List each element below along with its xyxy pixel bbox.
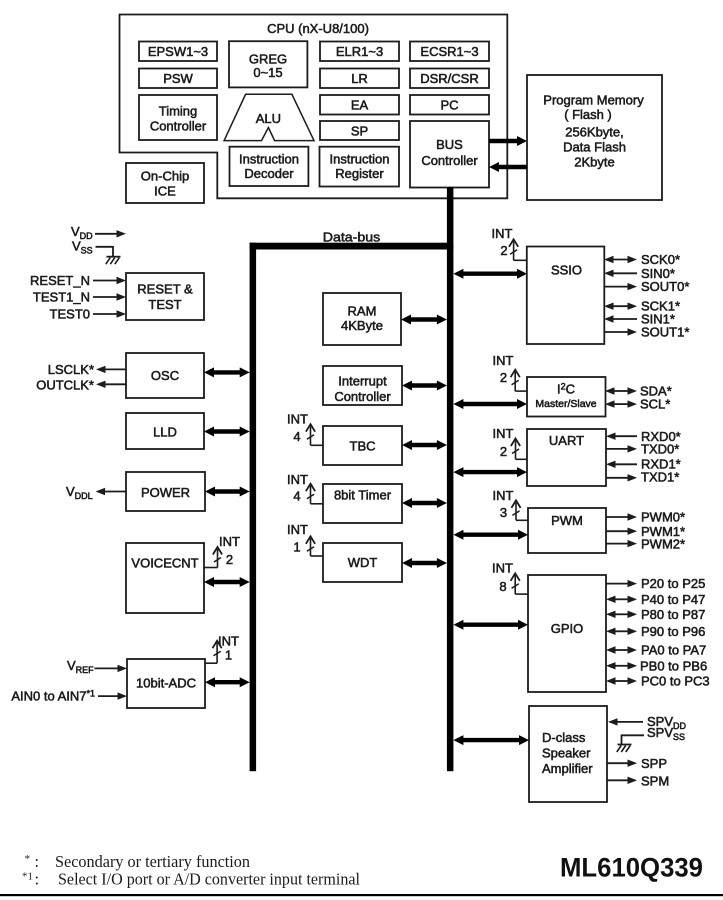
svg-text:Instruction: Instruction [330,151,390,166]
svg-text:4KByte: 4KByte [341,318,383,333]
svg-text:PSW: PSW [163,71,193,86]
svg-text:ML610Q339: ML610Q339 [560,853,703,883]
svg-text:0~15: 0~15 [253,65,282,80]
svg-text:On-Chip: On-Chip [141,169,189,184]
svg-text:Data Flash: Data Flash [563,140,626,155]
svg-text:LLD: LLD [153,425,177,440]
svg-text:P20 to P25: P20 to P25 [641,576,705,591]
svg-text:SCL*: SCL* [640,397,670,412]
svg-text:2Kbyte: 2Kbyte [574,155,614,170]
svg-text:Register: Register [335,166,384,181]
svg-text:Controller: Controller [150,119,207,134]
svg-text:TXD1*: TXD1* [641,470,679,485]
svg-text:SOUT1*: SOUT1* [641,325,689,340]
svg-text:P90 to P96: P90 to P96 [641,624,705,639]
svg-text:Master/Slave: Master/Slave [535,398,596,410]
svg-text:4: 4 [293,488,300,503]
svg-text:8: 8 [499,579,506,594]
svg-text:INT: INT [493,353,514,368]
svg-text:BUS: BUS [436,137,463,152]
svg-text:2: 2 [500,243,507,258]
svg-text:10bit-ADC: 10bit-ADC [136,676,196,691]
svg-text:PA0 to PA7: PA0 to PA7 [641,643,706,658]
svg-text:PB0 to PB6: PB0 to PB6 [640,658,707,673]
svg-text:ELR1~3: ELR1~3 [336,44,383,59]
svg-text:INT: INT [287,472,308,487]
svg-text:256Kbyte,: 256Kbyte, [565,125,624,140]
svg-text:I2C: I2C [557,382,575,397]
svg-text:2: 2 [226,552,233,567]
svg-text:P40 to P47: P40 to P47 [641,592,705,607]
svg-text:D-class: D-class [542,730,586,745]
svg-text:WDT: WDT [348,555,378,570]
svg-text:Decoder: Decoder [244,166,294,181]
svg-text:ECSR1~3: ECSR1~3 [420,44,478,59]
svg-text:DSR/CSR: DSR/CSR [420,71,479,86]
svg-text:PWM: PWM [551,513,583,528]
svg-text:SSIO: SSIO [551,262,582,277]
svg-text:EPSW1~3: EPSW1~3 [148,44,208,59]
svg-text:PC0 to PC3: PC0 to PC3 [641,674,710,689]
svg-text:VOICECNT: VOICECNT [131,556,198,571]
svg-text:Controller: Controller [421,153,478,168]
svg-text:Controller: Controller [334,389,391,404]
svg-text:INT: INT [492,561,513,576]
svg-text:SPM: SPM [641,773,669,788]
svg-text:PWM0*: PWM0* [641,510,685,525]
svg-text:Interrupt: Interrupt [338,374,387,389]
svg-text:3: 3 [500,505,507,520]
svg-text:SCK0*: SCK0* [641,252,680,267]
svg-text:PC: PC [440,98,458,113]
svg-text:OUTCLK*: OUTCLK* [36,378,94,393]
svg-text:CPU (nX-U8/100): CPU (nX-U8/100) [267,21,369,36]
svg-text:P80 to P87: P80 to P87 [641,607,705,622]
svg-text:LR: LR [351,71,368,86]
svg-text:8bit Timer: 8bit Timer [334,488,392,503]
svg-text:RAM: RAM [348,304,377,319]
svg-text:INT: INT [287,522,308,537]
svg-text:1: 1 [225,648,232,663]
svg-text:TBC: TBC [350,439,376,454]
svg-text:Select I/O port or A/D convert: Select I/O port or A/D converter input t… [58,870,360,889]
svg-text:RESET &: RESET & [137,282,193,297]
svg-text:AIN0 to AIN7*1: AIN0 to AIN7*1 [11,689,95,704]
svg-text:2: 2 [500,370,507,385]
svg-text:LSCLK*: LSCLK* [48,362,94,377]
svg-text:ALU: ALU [256,111,281,126]
svg-text:SPP: SPP [641,756,667,771]
svg-text:Speaker: Speaker [542,745,591,760]
svg-text:UART: UART [549,433,584,448]
svg-text:INT: INT [493,426,514,441]
svg-text:1: 1 [293,539,300,554]
svg-text:INT: INT [493,488,514,503]
svg-text:TEST1_N: TEST1_N [33,290,90,305]
svg-text:Data-bus: Data-bus [323,230,381,245]
svg-text:POWER: POWER [141,485,190,500]
svg-text:PWM2*: PWM2* [641,536,685,551]
svg-text:TEST0: TEST0 [50,307,90,322]
svg-text:OSC: OSC [151,368,179,383]
svg-text:TXD0*: TXD0* [641,442,679,457]
svg-text:Program Memory: Program Memory [543,93,644,108]
svg-text:Timing: Timing [159,104,198,119]
svg-text:SOUT0*: SOUT0* [641,279,689,294]
svg-text:ICE: ICE [154,184,176,199]
svg-text:2: 2 [500,444,507,459]
svg-text:Secondary or tertiary function: Secondary or tertiary function [55,852,250,871]
svg-text:SP: SP [351,124,368,139]
svg-text:EA: EA [351,98,369,113]
svg-text:INT: INT [492,226,513,241]
svg-text:INT: INT [218,634,239,649]
svg-text:INT: INT [219,534,240,549]
svg-text:Instruction: Instruction [239,151,299,166]
svg-text:TEST: TEST [148,297,181,312]
svg-text:RESET_N: RESET_N [30,273,90,288]
svg-text:INT: INT [287,412,308,427]
svg-text:Amplifier: Amplifier [542,761,593,776]
svg-text:GPIO: GPIO [551,621,584,636]
svg-text:4: 4 [293,429,300,444]
